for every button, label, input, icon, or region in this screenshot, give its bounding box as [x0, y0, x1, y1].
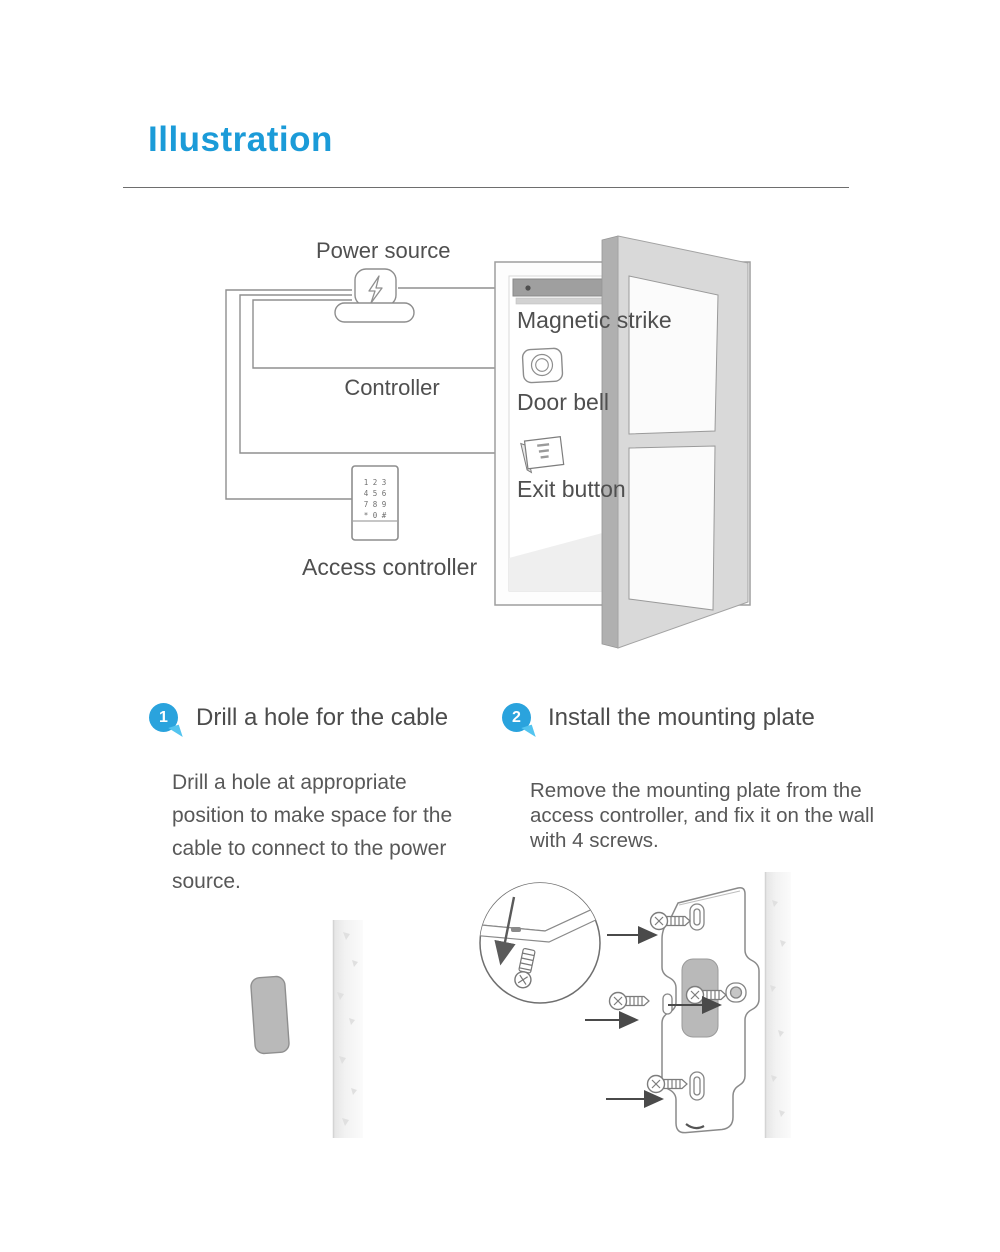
manual-page: Illustration [0, 0, 1000, 1252]
label-door-bell: Door bell [517, 389, 609, 416]
svg-text:1 2 3: 1 2 3 [364, 478, 387, 487]
door-illustration [495, 236, 750, 648]
svg-text:7 8 9: 7 8 9 [364, 500, 387, 509]
wall-hole-illustration [250, 920, 363, 1138]
step-1-number: 1 [159, 709, 168, 727]
label-exit-button: Exit button [517, 476, 626, 503]
access-controller-icon: 1 2 3 4 5 6 7 8 9 * 0 # [352, 466, 398, 540]
door-window-upper [629, 276, 718, 434]
screw-icon-left [610, 993, 650, 1010]
wall-strip-right [765, 872, 791, 1138]
step-1-badge: 1 [149, 703, 178, 732]
illustration-artwork: 1 2 3 4 5 6 7 8 9 * 0 # [0, 0, 1000, 1252]
step-1-description: Drill a hole at appropriate position to … [172, 766, 470, 898]
door-bell-icon [522, 348, 563, 383]
svg-text:* 0 #: * 0 # [364, 511, 387, 520]
door-window-lower [629, 446, 715, 610]
cable-hole-cutout [250, 976, 289, 1054]
step-2-description: Remove the mounting plate from the acces… [530, 778, 908, 853]
step-2-badge: 2 [502, 703, 531, 732]
label-magnetic-strike: Magnetic strike [517, 307, 672, 334]
door-hinge-edge [602, 236, 618, 648]
step-1-title: Drill a hole for the cable [196, 704, 448, 732]
wall-strip-left [333, 920, 363, 1138]
label-controller: Controller [340, 375, 444, 401]
label-power-source: Power source [316, 238, 448, 264]
label-access-controller: Access controller [302, 554, 477, 581]
step-2-number: 2 [512, 709, 521, 727]
svg-text:4 5 6: 4 5 6 [364, 489, 387, 498]
controller-body [335, 303, 414, 322]
magnifier-icon [471, 860, 600, 1003]
mounting-plate-illustration [471, 860, 791, 1138]
step-2-title: Install the mounting plate [548, 704, 815, 732]
